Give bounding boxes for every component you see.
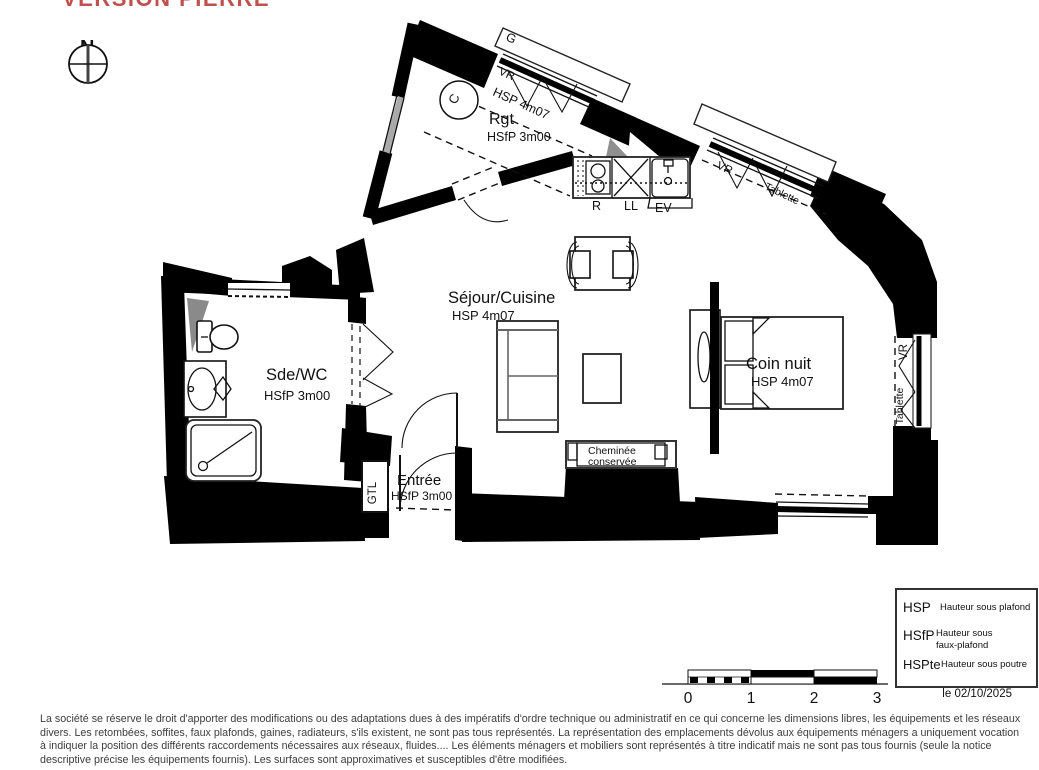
room-height-sde: HSfP 3m00 — [264, 388, 330, 403]
scale-tick-1: 1 — [747, 690, 756, 707]
vr-label-upper-right: VR — [715, 160, 735, 178]
diagonal-window — [383, 96, 404, 154]
legend-desc-hsfp-line1: Hauteur sous — [936, 628, 993, 639]
dining-table — [567, 237, 638, 290]
entrance-threshold — [396, 508, 455, 510]
rgt-door-opening — [452, 166, 496, 184]
room-height-rgt: HSfP 3m00 — [487, 130, 551, 144]
disclaimer-text: La société se réserve le droit d'apporte… — [40, 713, 1025, 767]
sde-folding-door — [363, 378, 392, 408]
sejour-door-swing — [402, 393, 457, 448]
room-name-coin-nuit: Coin nuit — [746, 355, 812, 373]
room-name-entree: Entrée — [397, 472, 441, 489]
sofa — [497, 321, 558, 432]
room-name-rgt: Rgt — [489, 111, 514, 128]
tablette-label-right: Tablette — [894, 387, 906, 424]
bottom-right-window — [775, 494, 868, 517]
room-height-coin-nuit: HSP 4m07 — [751, 374, 814, 389]
toilet-bowl — [210, 325, 238, 349]
washbasin-counter — [184, 361, 226, 417]
floor-plan-svg: N — [0, 0, 1039, 770]
legend-abbr-hsp: HSP — [903, 600, 931, 615]
beam — [710, 282, 719, 454]
scale-bar: 0 1 2 3 — [662, 670, 888, 707]
side-table — [583, 354, 621, 403]
plan-date: le 02/10/2025 — [942, 688, 1012, 700]
rgt-door-opening — [458, 182, 502, 200]
chimney-label-line2: conservée — [588, 456, 637, 468]
gtl-label: GTL — [367, 481, 379, 504]
room-name-sejour: Séjour/Cuisine — [448, 289, 555, 307]
legend-abbr-hspte: HSPte — [903, 657, 941, 672]
washer-label: LL — [624, 199, 638, 213]
upper-right-window — [694, 104, 836, 214]
vr-label-right: VR — [898, 344, 910, 360]
window-glass — [776, 509, 868, 511]
scale-tick-3: 3 — [873, 690, 882, 707]
cooktop-label: R — [592, 199, 601, 213]
legend-box: HSP Hauteur sous plafond HSfP Hauteur so… — [896, 589, 1037, 687]
sde-window — [228, 283, 290, 301]
room-height-entree: HSfP 3m00 — [391, 489, 452, 503]
floor-plan-page: VERSION PIERRE N — [0, 0, 1039, 770]
room-name-sde: Sde/WC — [266, 366, 328, 384]
legend-desc-hspte: Hauteur sous poutre — [941, 659, 1027, 670]
rgt-door-swing — [464, 200, 508, 222]
scale-tick-0: 0 — [684, 690, 693, 707]
window-reveal — [913, 334, 931, 428]
sde-folding-door — [363, 324, 393, 380]
legend-desc-hsp: Hauteur sous plafond — [940, 602, 1030, 613]
chair — [613, 251, 633, 278]
bathroom-fixtures — [184, 321, 261, 481]
shower-tray — [186, 420, 261, 481]
walls — [161, 20, 938, 545]
room-height-sejour: HSP 4m07 — [452, 308, 515, 323]
compass-rose: N — [69, 37, 107, 83]
sink-label: EV — [655, 201, 672, 215]
scale-tick-2: 2 — [810, 690, 819, 707]
legend-abbr-hsfp: HSfP — [903, 628, 935, 643]
tablette-label-upper-right: Tablette — [763, 181, 802, 207]
legend-desc-hsfp-line2: faux-plafond — [936, 640, 988, 651]
